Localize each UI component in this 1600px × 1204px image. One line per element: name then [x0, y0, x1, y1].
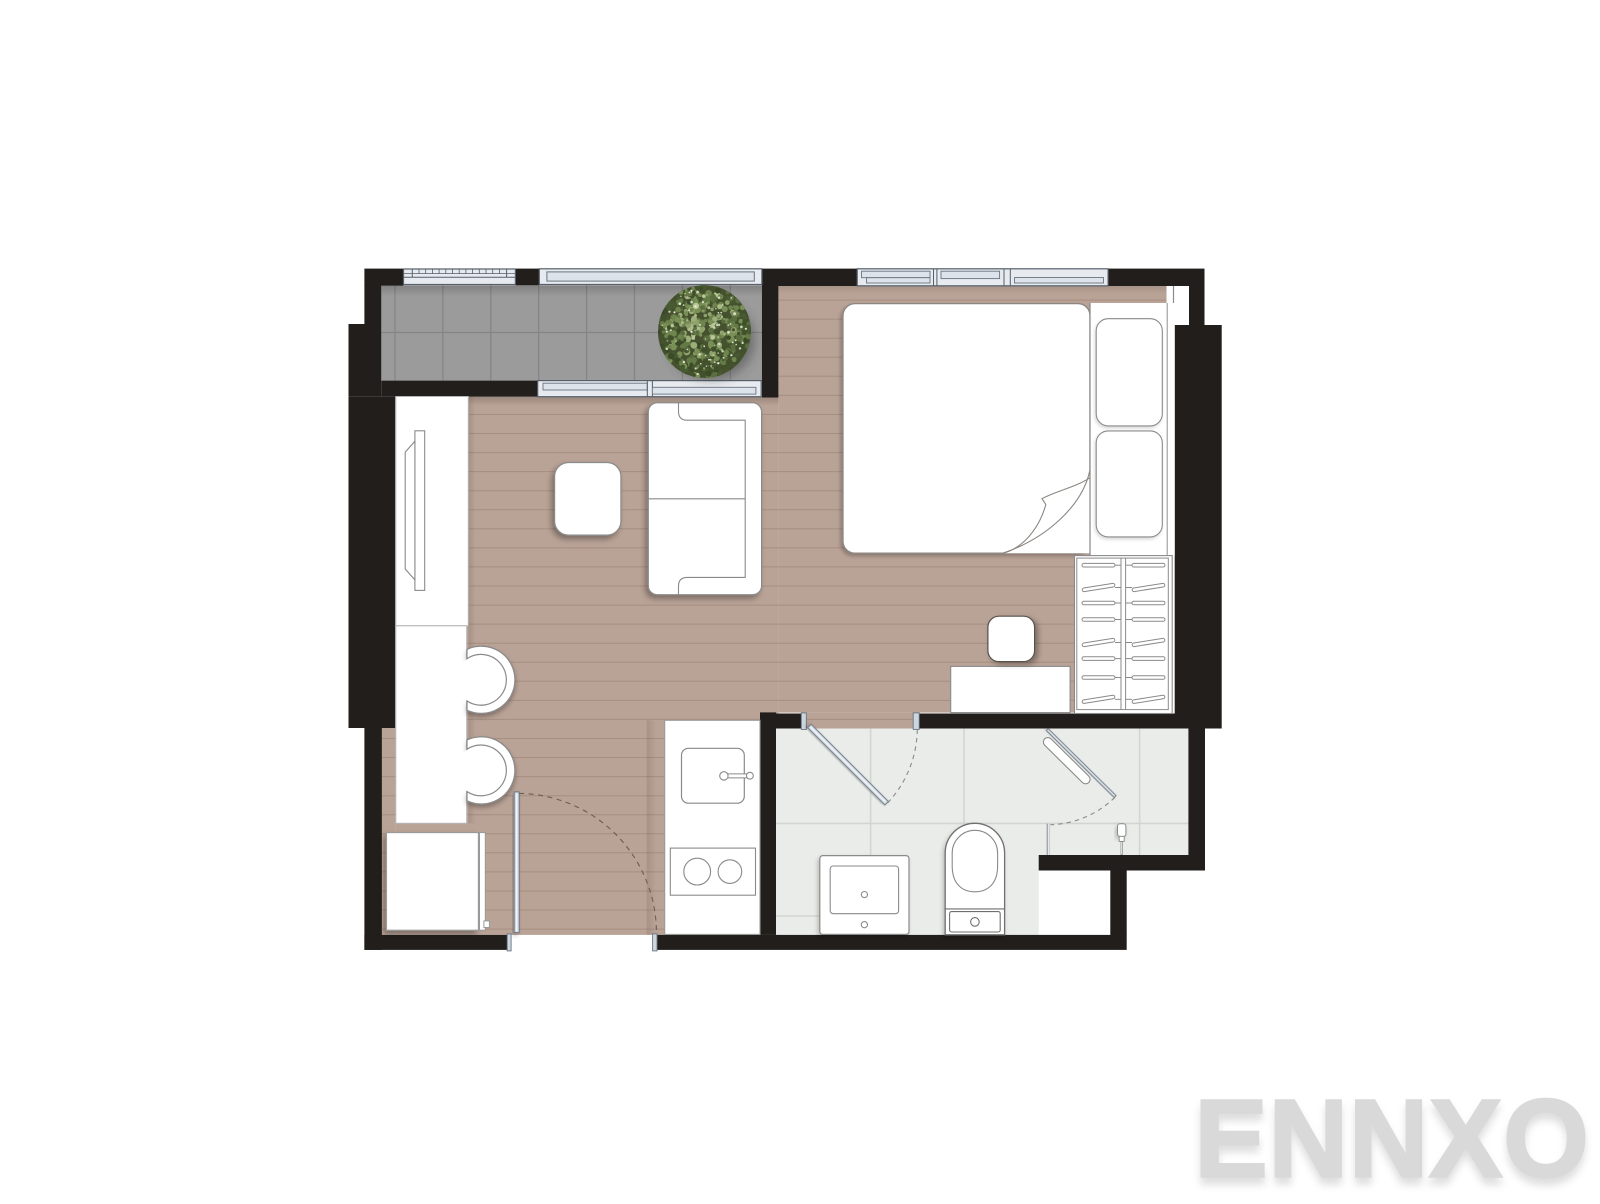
svg-text:ENNXO: ENNXO — [1194, 1078, 1589, 1201]
